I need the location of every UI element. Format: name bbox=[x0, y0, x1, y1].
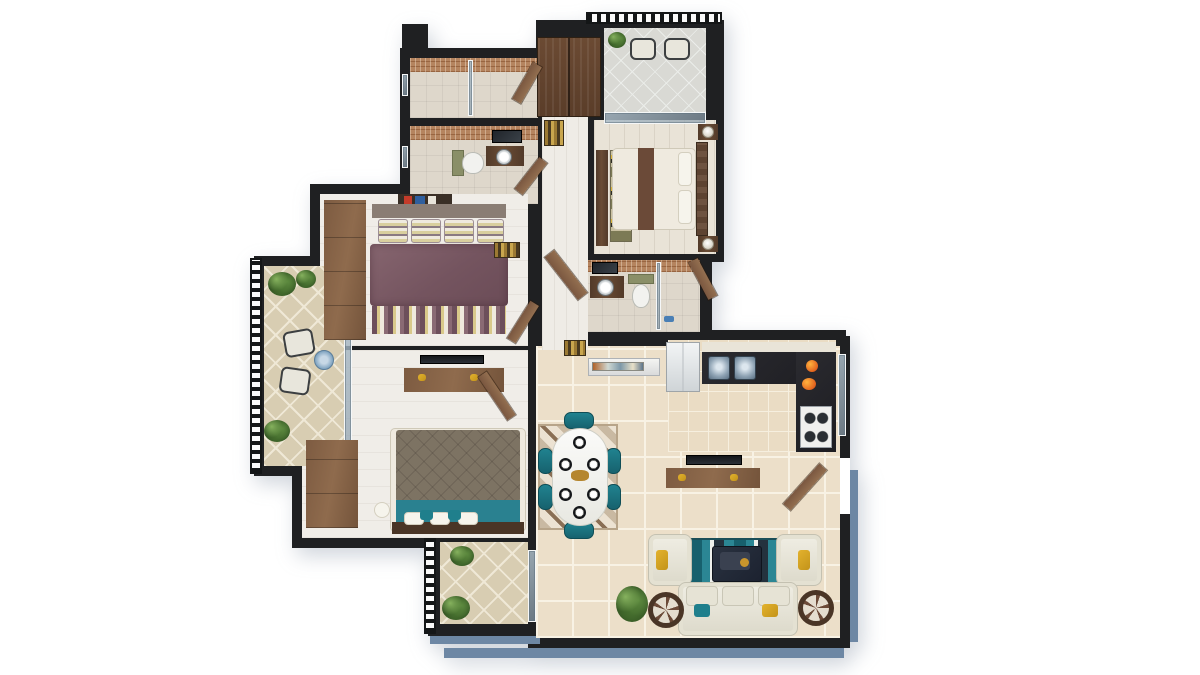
sink-kitchen-2 bbox=[734, 356, 756, 380]
sofa-cushion-1 bbox=[686, 586, 718, 606]
plant-living bbox=[616, 586, 648, 622]
pillow-sofa-teal bbox=[694, 604, 710, 617]
window-kitchen bbox=[838, 354, 846, 436]
floor-corridor bbox=[542, 116, 588, 350]
pillow-bed3-3 bbox=[458, 512, 478, 525]
railing-left-balcony bbox=[250, 258, 262, 474]
pillow-armchair-right bbox=[798, 550, 810, 570]
sofa-cushion-3 bbox=[758, 586, 790, 606]
balcony-left-plant-2 bbox=[296, 270, 316, 288]
sink-bathroom-2 bbox=[496, 149, 512, 165]
balcony-bottom-plant-2 bbox=[442, 596, 470, 620]
balcony-left-plant-1 bbox=[268, 272, 296, 296]
hob-kitchen bbox=[800, 406, 832, 448]
deco-living-1 bbox=[678, 474, 686, 481]
wardrobe-master bbox=[538, 38, 600, 116]
glass-door-bottom-balcony bbox=[528, 550, 536, 622]
pillow-bed2-3 bbox=[444, 219, 474, 243]
pouf-bedroom-3 bbox=[374, 502, 390, 518]
plate-4 bbox=[559, 488, 572, 501]
glass-door-top-balcony bbox=[604, 112, 706, 124]
pillow-bed2-1 bbox=[378, 219, 408, 243]
pillow-bed2-4 bbox=[477, 219, 504, 243]
tv-living bbox=[686, 455, 742, 465]
plate-5 bbox=[587, 488, 600, 501]
mosaic-wall-bathroom-1 bbox=[410, 58, 538, 72]
balcony-top-plant bbox=[608, 32, 626, 48]
pillow-bed3-teal-1 bbox=[420, 510, 433, 520]
plate-3 bbox=[587, 458, 600, 471]
pillow-sofa-mustard bbox=[762, 604, 778, 617]
balcony-top-chair-1 bbox=[630, 38, 656, 60]
dining-chair-left-1 bbox=[538, 448, 553, 474]
window-bathroom-1 bbox=[402, 74, 408, 96]
toilet-tank-master-bathroom bbox=[628, 274, 654, 284]
dining-chair-right-1 bbox=[606, 448, 621, 474]
toilet-master-bathroom bbox=[632, 284, 650, 308]
duvet-bedroom-3 bbox=[396, 430, 520, 502]
shelf-book-white bbox=[428, 196, 436, 204]
wall-step-topleft bbox=[402, 24, 428, 52]
balcony-left-plant-3 bbox=[264, 420, 290, 442]
bed-runner-master bbox=[638, 148, 654, 230]
fridge bbox=[666, 342, 700, 392]
pillow-master-1 bbox=[678, 152, 692, 186]
sofa-cushion-2 bbox=[722, 586, 754, 606]
duvet-bedroom-2 bbox=[370, 244, 508, 306]
pillow-bed3-teal-2 bbox=[448, 510, 461, 520]
deco-bed3-1 bbox=[418, 374, 426, 381]
window-bathroom-2 bbox=[402, 146, 408, 168]
outer-band-bottom bbox=[444, 648, 844, 658]
dresser-master bbox=[596, 150, 608, 246]
balcony-top-chair-2 bbox=[664, 38, 690, 60]
deco-bed3-2 bbox=[470, 374, 478, 381]
shelf-book-red bbox=[404, 196, 412, 204]
shower-glass-master-bathroom bbox=[656, 262, 661, 330]
headboard-master bbox=[696, 142, 708, 236]
entry-gap bbox=[840, 458, 850, 514]
lamp-2 bbox=[702, 238, 714, 250]
wardrobe-bedroom-2 bbox=[324, 200, 366, 340]
headboard-bedroom-2 bbox=[372, 204, 506, 218]
pillow-master-2 bbox=[678, 190, 692, 224]
drain-master-bathroom bbox=[664, 316, 674, 322]
lamp-1 bbox=[702, 126, 714, 138]
doormat-foyer bbox=[564, 340, 586, 356]
sink-kitchen-1 bbox=[708, 356, 730, 380]
railing-top-balcony bbox=[586, 12, 722, 24]
fruit-bowl-2 bbox=[802, 378, 816, 390]
balcony-left-table bbox=[314, 350, 334, 370]
side-table-left bbox=[648, 592, 684, 628]
shower-glass-bathroom-1 bbox=[468, 60, 473, 116]
plate-2 bbox=[559, 458, 572, 471]
wardrobe-bedroom-3 bbox=[306, 440, 358, 528]
plate-1 bbox=[573, 436, 586, 449]
pillow-armchair-left bbox=[656, 550, 668, 570]
artwork-foyer bbox=[592, 362, 644, 371]
backsplash-kitchen bbox=[702, 342, 836, 352]
bed-foot-bedroom-2 bbox=[372, 306, 506, 334]
toilet-bathroom-2 bbox=[462, 152, 484, 174]
outer-band-right bbox=[850, 470, 858, 642]
dining-chair-left-2 bbox=[538, 484, 553, 510]
pillow-bed2-2 bbox=[411, 219, 441, 243]
tv-bedroom-3 bbox=[420, 355, 484, 364]
shelf-book-blue bbox=[415, 196, 425, 204]
side-table-right bbox=[798, 590, 834, 626]
mirror-master-bathroom bbox=[592, 262, 618, 274]
armchair-left bbox=[648, 534, 692, 586]
dining-chair-top bbox=[564, 412, 594, 429]
dining-centerpiece bbox=[571, 470, 589, 481]
fruit-bowl-1 bbox=[806, 360, 818, 372]
screenshot-canvas bbox=[0, 0, 1200, 675]
balcony-bottom-plant-1 bbox=[450, 546, 474, 566]
mirror-bathroom-2 bbox=[492, 130, 522, 143]
sink-master-bathroom bbox=[597, 279, 614, 296]
balcony-left-chair-2 bbox=[278, 366, 311, 396]
dining-chair-right-2 bbox=[606, 484, 621, 510]
deco-living-2 bbox=[730, 474, 738, 481]
railing-bottom-balcony bbox=[424, 532, 436, 634]
floor-plan-3d bbox=[0, 0, 1200, 675]
plate-6 bbox=[573, 506, 586, 519]
doormat-bedroom-2 bbox=[494, 242, 520, 258]
pillow-bed3-2 bbox=[430, 512, 450, 525]
outer-band-balcony-bottom bbox=[430, 636, 540, 644]
coffee-table-gold-bowl bbox=[740, 558, 749, 567]
balcony-left-chair-1 bbox=[282, 328, 316, 359]
doormat-master bbox=[544, 120, 564, 146]
